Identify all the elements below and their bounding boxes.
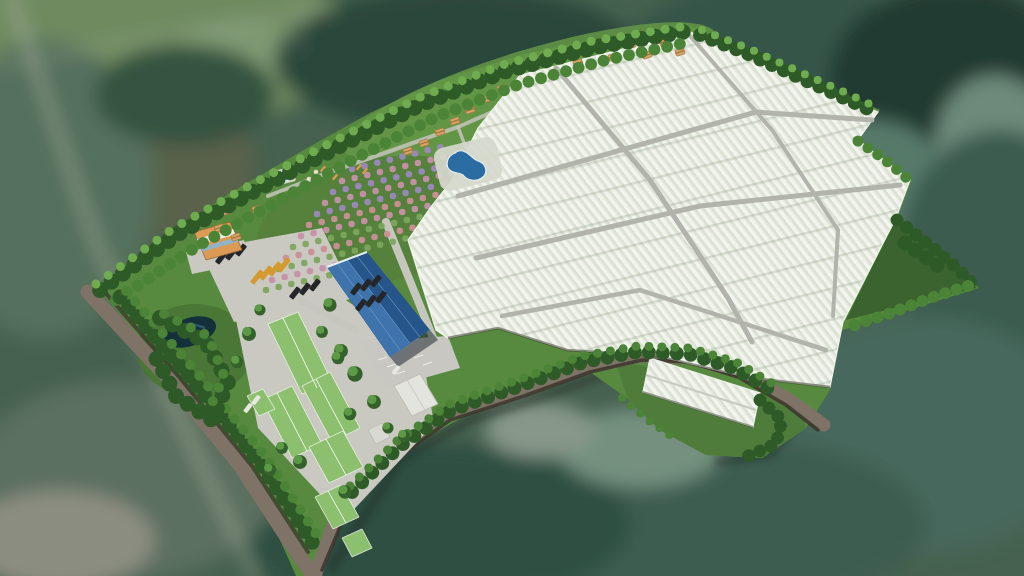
site-plan-svg	[0, 0, 1024, 576]
umbrella	[314, 170, 319, 175]
aerial-site-render	[0, 0, 1024, 576]
